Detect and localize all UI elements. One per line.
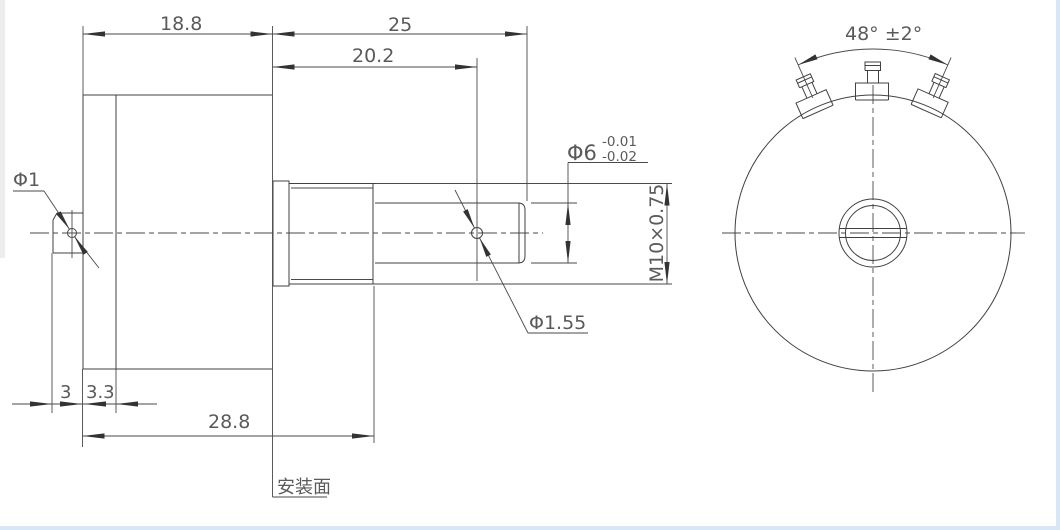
extension-lines [52, 26, 672, 497]
thread-minor-lines [291, 188, 373, 280]
mounting-face-label: 安装面 [277, 477, 331, 498]
dim-shaft-length: 25 [388, 14, 412, 36]
window-edge-left [0, 0, 5, 258]
dim-terminal-angle: 48° ±2° [845, 23, 922, 45]
dim-rear-tab-depth: 3 [60, 382, 71, 403]
drawing-canvas: 18.8 25 20.2 Φ1 3 3.3 28.8 Φ6 -0.01 -0.0… [0, 0, 1060, 530]
arrowheads-front [798, 54, 948, 65]
collar [273, 181, 289, 286]
dim-flange-depth: 3.3 [86, 382, 115, 403]
terminal-left [787, 70, 833, 118]
dim-shaft-tol-upper: -0.01 [602, 134, 637, 150]
dim-body-length: 18.8 [160, 13, 202, 35]
technical-drawing: 18.8 25 20.2 Φ1 3 3.3 28.8 Φ6 -0.01 -0.0… [0, 0, 1060, 530]
leader-phi6 [568, 163, 648, 204]
side-view: 18.8 25 20.2 Φ1 3 3.3 28.8 Φ6 -0.01 -0.0… [12, 13, 672, 498]
body-outline [83, 95, 273, 369]
dim-overall-length: 28.8 [208, 411, 250, 433]
dim-shaft-dia: Φ6 [567, 141, 597, 165]
window-edge-bottom [0, 526, 1060, 530]
front-view: 48° ±2° [722, 23, 1025, 393]
terminal-center [856, 62, 889, 100]
angle-arc [798, 49, 948, 65]
dim-thread-spec: M10×0.75 [646, 184, 668, 283]
window-edge-right [1056, 0, 1060, 530]
arrowheads-side [30, 31, 670, 438]
threaded-bushing [289, 184, 375, 285]
dim-cross-hole-dia: Φ1.55 [529, 312, 586, 334]
dim-bushing-length: 20.2 [352, 45, 394, 67]
dim-tab-hole-dia: Φ1 [13, 169, 40, 191]
terminal-right [911, 70, 957, 118]
leader-phi1 [13, 191, 99, 268]
dim-shaft-tol-lower: -0.02 [602, 149, 637, 165]
